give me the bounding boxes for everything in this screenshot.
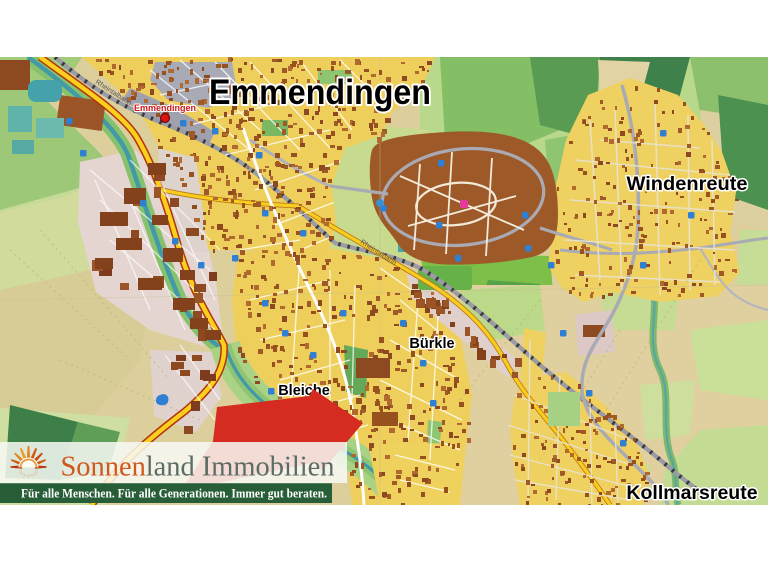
svg-text:Für alle Menschen. Für alle Ge: Für alle Menschen. Für alle Generationen… (21, 486, 327, 501)
svg-text:Kollmarsreute: Kollmarsreute (626, 482, 757, 504)
svg-text:Emmendingen: Emmendingen (134, 103, 196, 113)
svg-text:Windenreute: Windenreute (627, 173, 748, 195)
svg-text:Sonnenland Immobilien: Sonnenland Immobilien (61, 452, 335, 483)
svg-text:Emmendingen: Emmendingen (209, 72, 431, 112)
svg-text:Bürkle: Bürkle (409, 336, 454, 352)
